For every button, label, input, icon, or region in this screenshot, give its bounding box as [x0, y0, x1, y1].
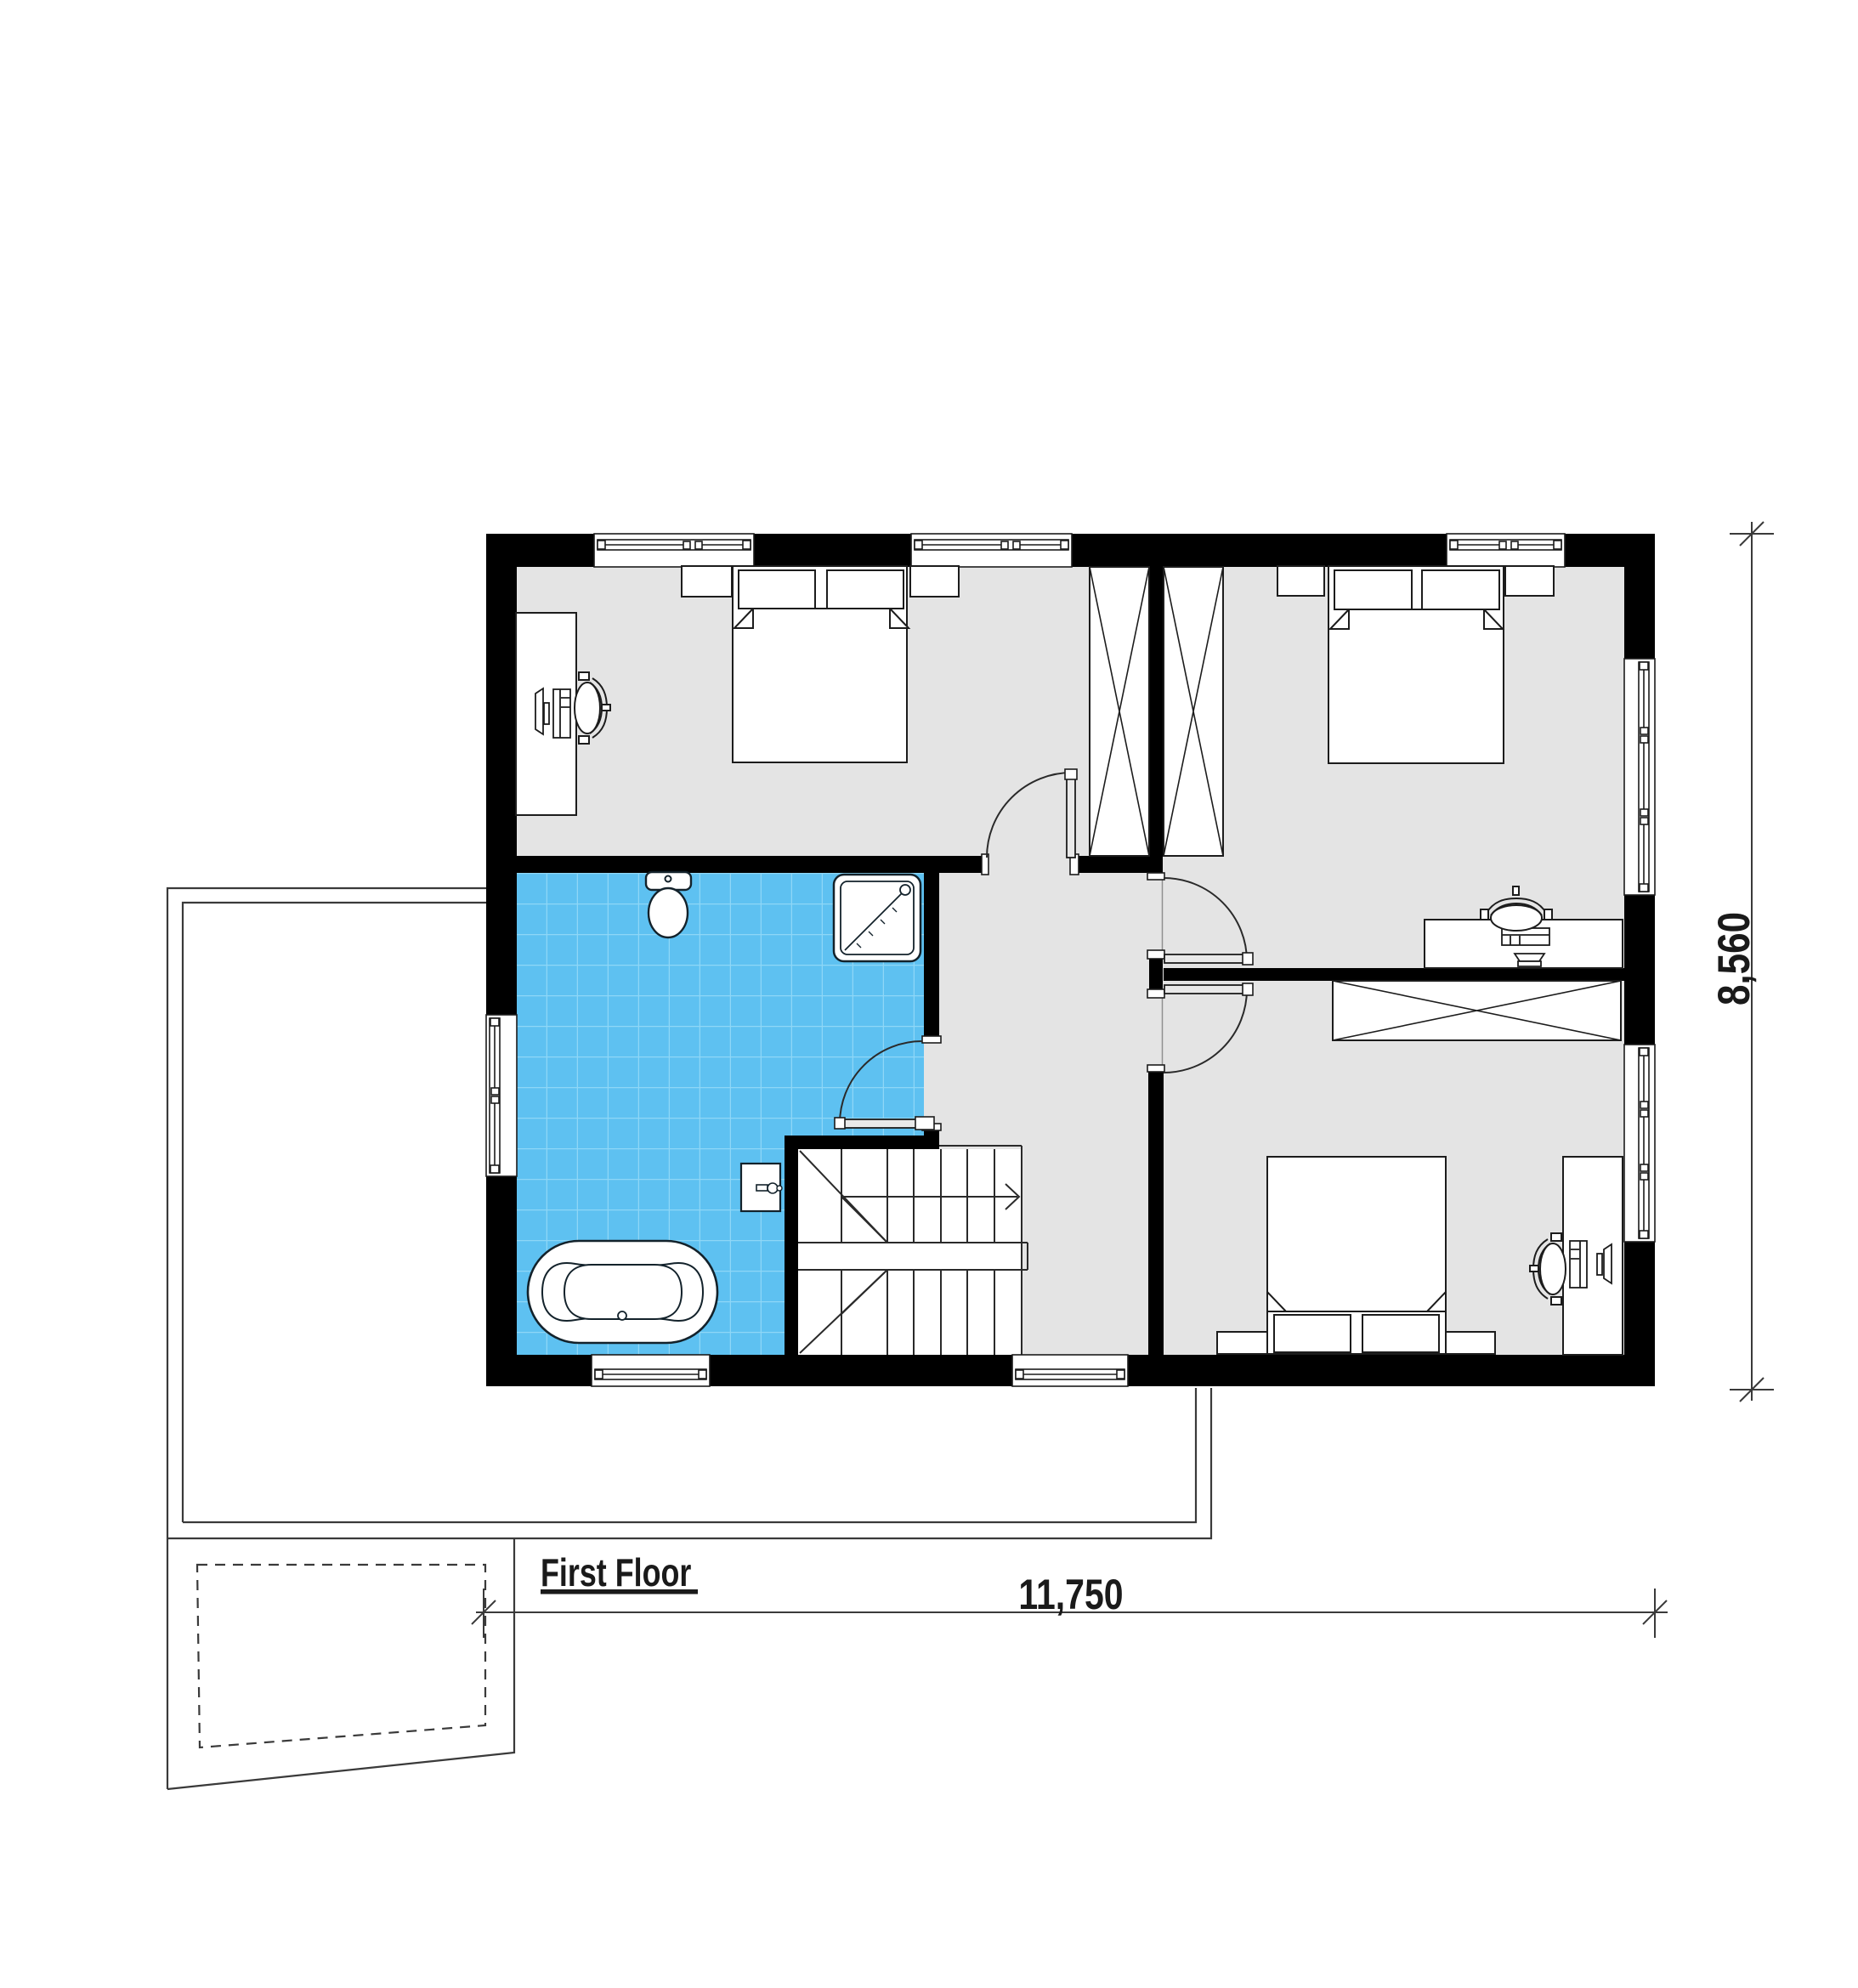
svg-text:First Floor: First Floor — [541, 1551, 691, 1594]
svg-text:11,750: 11,750 — [1018, 1571, 1123, 1618]
svg-text:8,560: 8,560 — [1709, 912, 1759, 1005]
